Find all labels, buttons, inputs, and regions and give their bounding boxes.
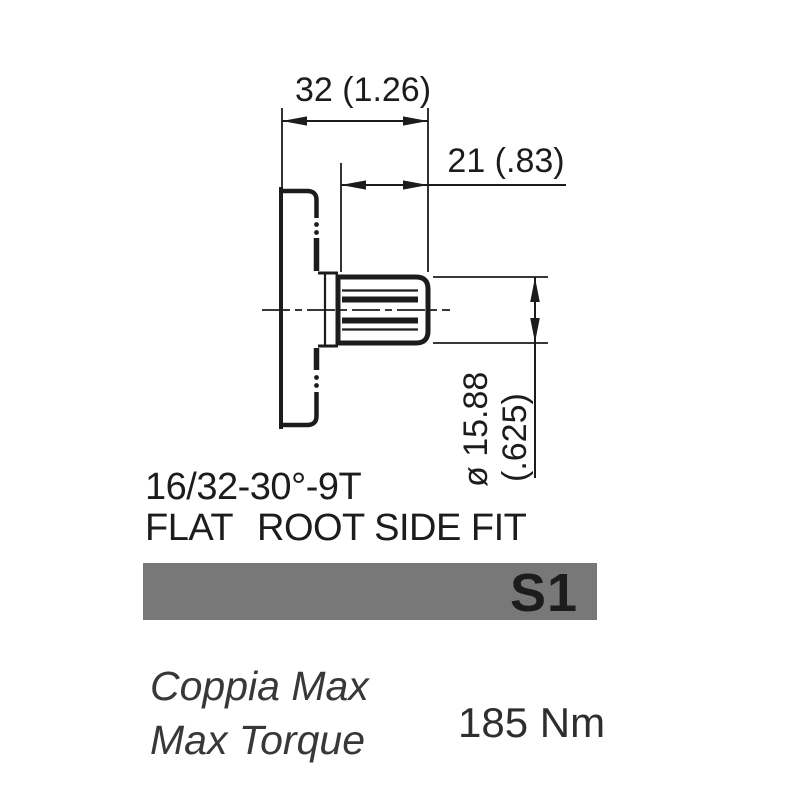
arrowhead-left-icon <box>282 116 307 125</box>
torque-section: Coppia Max Max Torque 185 Nm <box>150 663 605 763</box>
dimension-total-length: 32 (1.26) <box>282 71 431 272</box>
arrowhead-right-icon <box>403 180 428 189</box>
shaft-spec-panel: 32 (1.26) 21 (.83) <box>0 0 800 800</box>
technical-drawing: 32 (1.26) 21 (.83) <box>0 0 800 800</box>
centerline-dot <box>314 230 319 235</box>
dimension-spline-length: 21 (.83) <box>341 142 566 272</box>
torque-value: 185 Nm <box>458 699 605 746</box>
spline-spec-line2-word1: FLAT <box>145 507 233 549</box>
spline-spec-line2-rest: ROOT SIDE FIT <box>257 507 527 549</box>
centerline-dot <box>314 375 319 380</box>
dimension-spline-length-label: 21 (.83) <box>447 142 564 180</box>
spline-spec-line1: 16/32-30°-9T <box>145 466 361 508</box>
flange-outline <box>281 187 319 429</box>
centerline-dot <box>314 222 319 227</box>
arrowhead-left-icon <box>341 180 366 189</box>
flange-top-arm <box>281 191 317 218</box>
torque-label-italian: Coppia Max <box>150 663 370 709</box>
shaft-code-banner: S1 <box>143 563 597 623</box>
dimension-diameter: ø 15.88 (.625) <box>433 277 548 487</box>
diameter-label-inches: (.625) <box>496 393 534 482</box>
torque-label-english: Max Torque <box>150 717 365 763</box>
centerline-dot <box>314 383 319 388</box>
arrowhead-right-icon <box>403 116 428 125</box>
arrowhead-up-icon <box>530 278 540 303</box>
diameter-label-mm: ø 15.88 <box>457 372 495 487</box>
shaft-code-label: S1 <box>510 563 578 623</box>
flange-bottom-arm <box>281 392 317 425</box>
arrowhead-down-icon <box>530 318 540 343</box>
dimension-total-length-label: 32 (1.26) <box>295 71 431 109</box>
